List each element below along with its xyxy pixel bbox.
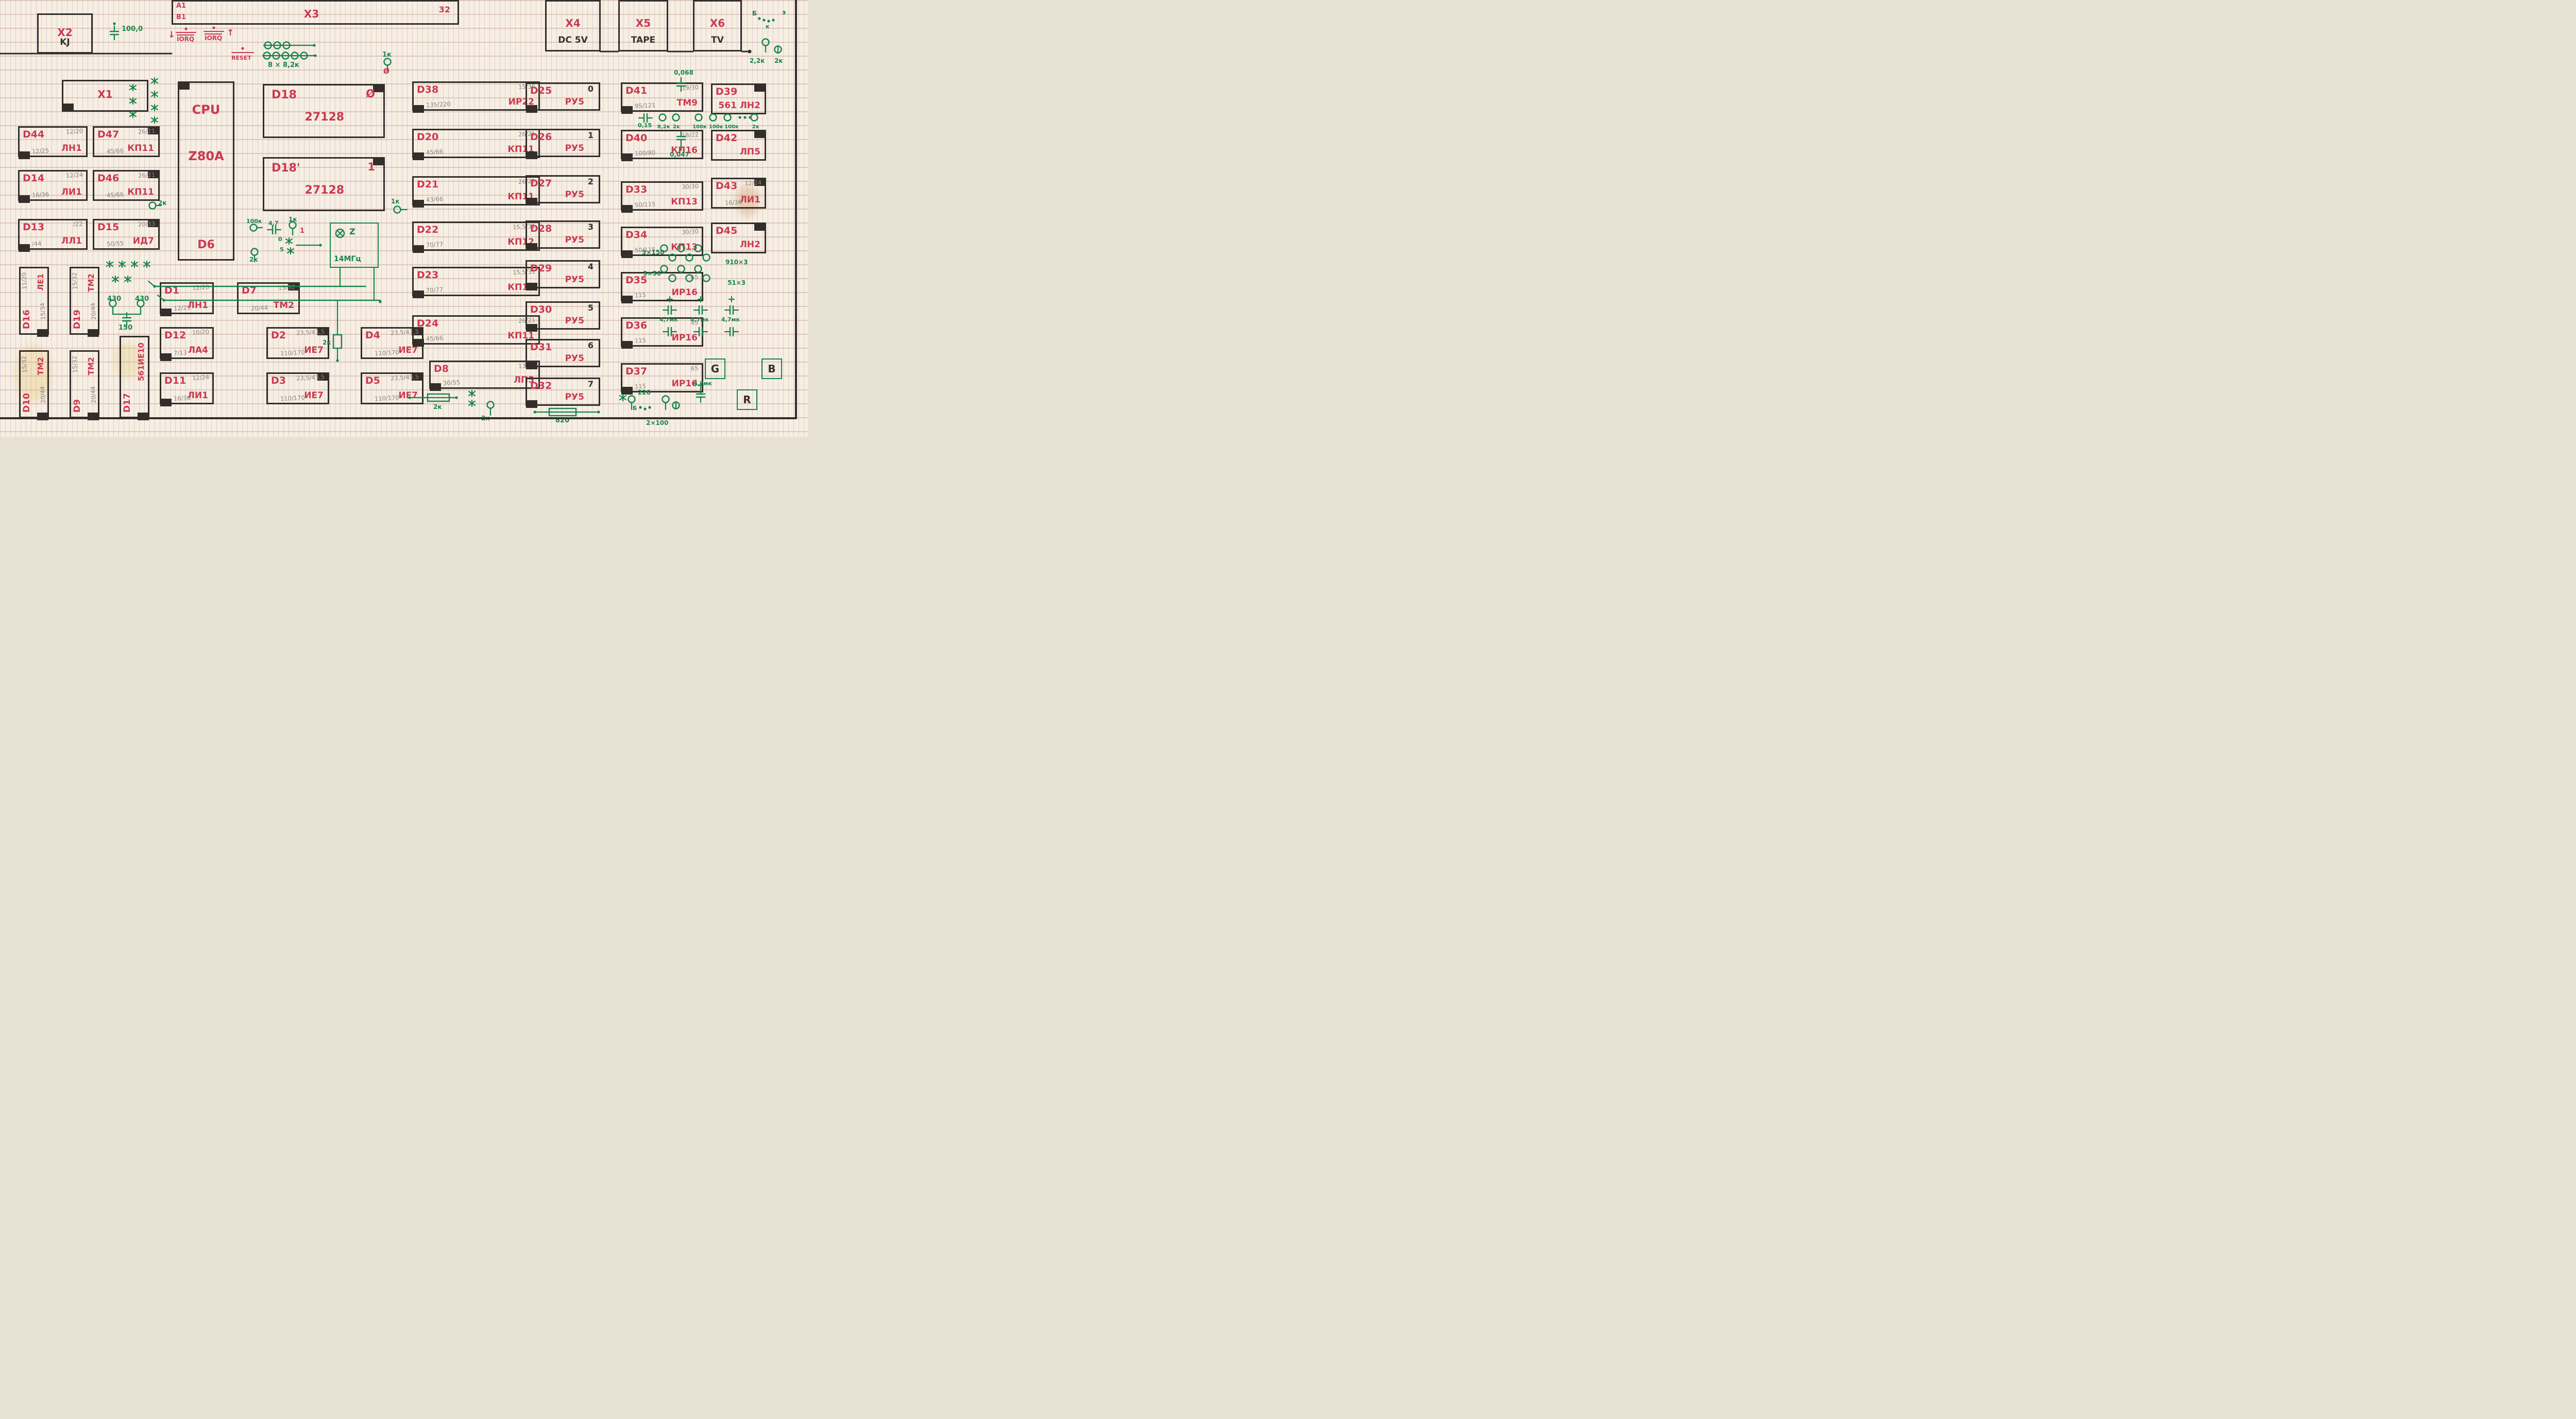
solder-dot-icon (767, 20, 770, 22)
annotation-grn: 5 (280, 247, 284, 252)
chip-pencil-coord: 10/20 (192, 329, 210, 336)
chip-type: ТМ2 (274, 301, 294, 310)
chip-pencil-coord: 43/66 (426, 196, 444, 203)
resistor-icon (663, 396, 669, 403)
chip-pencil-coord: 12/20 (66, 128, 83, 135)
solder-dot-icon (533, 411, 536, 413)
chip-d14: D1412/24ЛИ116/36 (18, 170, 88, 201)
chip-ref: D11 (164, 376, 186, 386)
annotation-grn: 2×100 (646, 420, 668, 426)
diode-icon (151, 92, 158, 96)
annotation-grn: 0,047 (670, 151, 689, 158)
chip-pencil-coord: 110/170 (375, 395, 399, 402)
chip-pencil-coord: 110/170 (280, 349, 305, 356)
annotation-grn: 430 (107, 296, 121, 302)
diode-icon (287, 249, 294, 253)
chip-ref: D39 (716, 87, 737, 97)
pin1-notch (178, 82, 190, 90)
solder-dot-icon (113, 22, 115, 25)
pin1-notch (621, 205, 633, 213)
solder-dot-icon (319, 244, 321, 246)
connector-ref: X6 (694, 18, 740, 28)
chip-type: ЛЕ1 (37, 273, 45, 290)
chip-type: 561ИЕ10 (138, 343, 145, 381)
connector-x3: A1B1X332 (172, 0, 459, 25)
chip-d32: D32РУ57 (526, 378, 600, 406)
chip-ref: D3 (271, 376, 286, 386)
solder-dot-icon (748, 50, 752, 54)
solder-dot-icon (597, 411, 600, 413)
diode-icon (620, 396, 626, 400)
chip-ref: D23 (417, 270, 438, 280)
annotation-grn: 8 × 8,2к (268, 62, 299, 69)
connector-name: KJ (39, 38, 91, 47)
diode-icon (469, 391, 475, 396)
diode-icon (144, 262, 150, 266)
rotated-label-area: D17561ИЕ10 (121, 338, 148, 416)
diode-icon (151, 118, 158, 122)
chip-ref: D5 (365, 376, 380, 386)
chip-pencil-coord: 19/30 (682, 84, 699, 91)
annotation-grn: 2к (752, 125, 759, 130)
chip-d12: D1210/20ЛА47/13 (160, 327, 214, 359)
diode-icon (107, 262, 113, 266)
chip-type: ИД7 (133, 237, 154, 246)
chip-pencil-coord: 26/21 (138, 128, 156, 135)
chip-d30: D30РУ55 (526, 301, 600, 330)
solder-dot-icon (336, 359, 338, 362)
resistor-body-icon (333, 335, 342, 348)
annotation-grn: 4,7мк (659, 317, 678, 322)
diode-icon (151, 79, 158, 83)
chip-ref: D29 (530, 264, 552, 273)
chip-pencil-coord: /22 (73, 221, 83, 228)
diode-icon (151, 106, 158, 110)
chip-ref: D32 (530, 381, 552, 391)
chip-d3: D323,5/43,5ИЕ7110/170 (266, 372, 329, 404)
annotation-grn: Б (752, 10, 757, 16)
annotation-grn: к (766, 24, 769, 29)
crystal-oscillator: Z14МГц (330, 223, 379, 268)
chip-type: ИЕ7 (398, 346, 418, 355)
chip-d23: D2315,5/31КП1270/77 (412, 267, 540, 296)
chip-ref: D25 (530, 86, 552, 96)
trace-line (148, 281, 155, 286)
connector-name: TAPE (620, 36, 667, 45)
chip-type: ТМ9 (677, 99, 698, 108)
pin1-notch (526, 198, 537, 206)
resistor-icon (673, 402, 680, 409)
chip-pencil-coord: 20/44 (90, 386, 97, 404)
chip-type: ЛА4 (188, 346, 208, 355)
resistor-icon (149, 202, 156, 209)
chip-ref: D31 (530, 343, 552, 352)
chip-ref: D44 (23, 130, 44, 140)
chip-type: 561 ЛН2 (718, 101, 760, 110)
diode-icon (107, 262, 113, 266)
solder-dot-icon (455, 396, 457, 399)
connector-x1: X1 (62, 80, 148, 112)
pin1-notch (754, 223, 766, 231)
annotation-grn: 2к (249, 257, 258, 263)
annotation-grn: Б (633, 405, 637, 411)
chip-ref: D47 (97, 130, 119, 140)
chip-type: ИР16 (672, 288, 698, 297)
chip-d19: D1915/32ТМ220/44 (70, 267, 99, 335)
chip-model: 27128 (305, 112, 345, 123)
solder-dot-icon (241, 47, 244, 49)
pin1-notch (413, 339, 424, 347)
ram-bit-index: 4 (588, 263, 594, 271)
chip-d17: D17561ИЕ10 (120, 336, 149, 418)
chip-ref: D8 (434, 364, 449, 374)
chip-d39: D39561 ЛН2 (711, 83, 766, 114)
resistor-body-icon (549, 408, 576, 416)
resistor-icon (678, 266, 685, 272)
ram-bit-index: 5 (588, 304, 594, 312)
solder-dot-icon (314, 54, 316, 57)
annotation-red: IORQ (177, 35, 194, 42)
chip-pencil-coord: 30/55 (443, 380, 461, 386)
annotation-grn: 51×3 (727, 280, 745, 286)
diode-icon (131, 262, 138, 266)
chip-d33: D3330/30КП1350/115 (621, 181, 703, 211)
chip-type: КП11 (127, 188, 154, 197)
solder-dot-icon (643, 407, 646, 410)
chip-pencil-coord: 11/20 (21, 272, 28, 290)
pin1-notch (413, 290, 424, 298)
resistor-icon (762, 39, 769, 46)
pin1-notch (621, 106, 633, 114)
annotation-grn: 2к (323, 339, 331, 346)
chip-ref: D20 (417, 132, 438, 142)
chip-d2: D223,5/43,5ИЕ7110/170 (266, 327, 329, 359)
solder-dot-icon (749, 116, 751, 118)
chip-d21: D2126/21КП1143/66 (412, 176, 540, 206)
resistor-icon (696, 114, 702, 121)
diode-icon (151, 92, 158, 96)
chip-ref: D18' (272, 163, 300, 174)
annotation-grn: 2к (774, 58, 783, 64)
chip-index: Ø (366, 89, 375, 99)
chip-d7: D715/32ТМ220/44 (237, 282, 300, 314)
rotated-label-area: D1915/32ТМ220/44 (71, 269, 98, 332)
chip-d1: D112/20ЛН112/25 (160, 282, 214, 314)
chip-type: ИЕ7 (398, 391, 418, 400)
chip-type: РУ5 (565, 317, 584, 326)
chip-pencil-coord: 110/170 (280, 395, 305, 402)
connector-pin-label: 32 (439, 6, 450, 14)
annotation-grn: 0 (278, 236, 282, 242)
chip-pencil-coord: 7/13 (174, 350, 187, 356)
chip-type: РУ5 (565, 98, 584, 107)
chip-ref: D34 (625, 230, 647, 240)
pin1-notch (413, 245, 424, 253)
chip-pencil-coord: 12/25 (174, 305, 191, 312)
pin1-notch (430, 383, 441, 391)
chip-d5: D523,5/43,5ИЕ7110/170 (361, 372, 423, 404)
annotation-grn: 4,7 (268, 220, 279, 226)
diode-icon (125, 277, 131, 281)
pin1-notch (19, 151, 30, 159)
diode-icon (119, 262, 125, 266)
chip-ref: D45 (716, 226, 737, 236)
chip-ref: D17 (123, 393, 132, 413)
chip-ref: D16 (23, 310, 31, 329)
chip-d10: D1015/32ТМ220/44 (19, 350, 49, 418)
chip-d15: D1520/33ИД750/55 (93, 219, 160, 250)
pin1-notch (413, 152, 424, 160)
chip-d9: D915/32ТМ220/44 (70, 350, 99, 418)
video-channel-letter: B (762, 364, 781, 374)
diode-icon (469, 401, 475, 405)
annotation-grn: 0,068 (674, 70, 693, 76)
chip-d41: D4119/30ТМ995/121 (621, 82, 703, 112)
diode-icon (151, 118, 158, 122)
chip-ref: D15 (97, 223, 119, 232)
annotation-grn: 150 (118, 324, 132, 331)
chip-d13: D13/22ЛЛ1/44 (18, 219, 88, 250)
annotation-grn: 3×56 (643, 270, 661, 277)
chip-d42: D42ЛП5 (711, 130, 766, 161)
chip-pencil-coord: 26/21 (138, 172, 156, 179)
connector-ref: X4 (547, 18, 599, 28)
diode-icon (151, 79, 158, 83)
ram-bit-index: 2 (588, 178, 594, 186)
resistor-icon (724, 114, 731, 121)
diode-icon (125, 277, 131, 281)
chip-pencil-coord: 23,5/43,5 (391, 374, 419, 382)
resistor-icon (661, 266, 668, 272)
solder-dot-icon (184, 27, 187, 30)
chip-d8: D813/23ЛП530/55 (429, 361, 540, 389)
solder-dot-icon (379, 300, 381, 303)
chip-ref: D28 (530, 224, 552, 234)
diode-icon (620, 396, 626, 400)
pin1-notch (526, 105, 537, 113)
annotation-red: ↓ (168, 31, 175, 40)
pin1-notch (754, 84, 766, 92)
resistor-icon (659, 114, 666, 121)
resistor-icon (394, 207, 401, 213)
chip-d16: D1611/20ЛЕ115/34 (19, 267, 49, 335)
chip-type: ЛИ1 (61, 188, 82, 197)
rotated-label-area: D1015/32ТМ220/44 (21, 353, 47, 416)
chip-pencil-coord: 45/66 (426, 335, 444, 342)
chip-d25: D25РУ50 (526, 82, 600, 111)
diode-icon (112, 277, 118, 281)
resistor-icon (629, 396, 635, 403)
chip-type: ИЕ7 (304, 346, 324, 355)
chip-pencil-coord: 95/121 (635, 102, 656, 109)
chip-pencil-coord: 12/24 (744, 180, 762, 186)
chip-ref: D12 (164, 331, 186, 340)
chip-pencil-coord: 70/77 (426, 287, 444, 294)
chip-d37: D3765ИР16115 (621, 363, 703, 392)
connector-name: TV (694, 36, 740, 45)
chip-type: КП13 (671, 198, 698, 207)
chip-d6: CPUZ80AD6 (178, 81, 234, 261)
chip-model: 27128 (305, 185, 345, 196)
resistor-icon (273, 53, 280, 59)
pin1-notch (19, 244, 30, 252)
connector-pin-label: A1 (176, 3, 186, 9)
chip-ref: D2 (271, 331, 286, 340)
chip-d46: D4626/21КП1145/66 (93, 170, 160, 201)
chip-d22: D2215,5/31КП1270/77 (412, 221, 540, 251)
chip-pencil-coord: 65 (691, 275, 699, 281)
chip-pencil-coord: 23,5/43,5 (296, 329, 325, 336)
chip-type: ТМ2 (88, 273, 95, 292)
solder-dot-icon (738, 116, 741, 118)
annotation-grn: 2к (673, 125, 680, 130)
pin1-notch (62, 104, 74, 111)
resistor-icon (251, 249, 258, 255)
annotation-grn: 100,0 (122, 26, 143, 32)
resistor-icon (775, 46, 782, 53)
chip-pencil-coord: 16/36 (32, 192, 49, 198)
diode-icon (112, 277, 118, 281)
chip-ref: D38 (417, 85, 438, 95)
diode-icon (469, 391, 475, 396)
annotation-red: Ø (383, 68, 389, 75)
chip-type: ЛН1 (61, 144, 82, 153)
chip-ref: D9 (73, 399, 82, 413)
chip-ref: D21 (417, 180, 438, 190)
connector-x4: X4DC 5V (545, 0, 601, 52)
ram-bit-index: 0 (588, 85, 594, 93)
chip-ref: D22 (417, 225, 438, 235)
pin1-notch (526, 243, 537, 251)
chip-d43: D4312/24ЛИ116/36 (711, 178, 766, 209)
chip-ref: D1 (164, 286, 179, 296)
diode-icon (286, 239, 292, 243)
annotation-grn: э (782, 9, 786, 15)
diode-icon (144, 262, 150, 266)
chip-d40: D4018/22КП16100/80 (621, 130, 703, 159)
chip-pencil-coord: 20/44 (251, 305, 268, 312)
pin1-notch (621, 341, 633, 349)
chip-pencil-coord: 50/115 (635, 201, 656, 208)
rotated-label-area: D1611/20ЛЕ115/34 (21, 269, 47, 332)
resistor-icon (710, 114, 717, 121)
chip-ref: D24 (417, 319, 438, 329)
annotation-red: RESET (231, 55, 251, 61)
chip-type: РУ5 (565, 144, 584, 153)
pin1-notch (526, 324, 537, 332)
pin1-notch (621, 153, 633, 161)
resistor-icon (250, 225, 257, 231)
resistor-icon (282, 53, 289, 59)
chip-type: ЛИ1 (740, 196, 760, 204)
resistor-icon (673, 114, 680, 121)
pin1-notch (160, 353, 172, 361)
diode-icon (130, 112, 136, 116)
chip-index: 1 (367, 162, 375, 173)
resistor-icon (265, 42, 272, 49)
pin1-notch (621, 296, 633, 303)
resistor-icon (264, 53, 270, 59)
chip-pencil-coord: 12/25 (32, 148, 49, 155)
annotation-grn: 100к (724, 125, 739, 130)
annotation-grn: 4,7мк (690, 317, 709, 322)
chip-pencil-coord: 100/80 (635, 149, 656, 157)
chip-d24: D2426/21КП1145/66 (412, 315, 540, 345)
pin1-notch (413, 105, 424, 113)
pin1-notch (526, 151, 537, 159)
solder-dot-icon (772, 19, 774, 21)
chip-pencil-coord: 30/30 (682, 183, 699, 190)
chip-d11: D1112/24ЛИ116/36 (160, 372, 214, 404)
resistor-icon (695, 266, 702, 272)
chip-pencil-coord: 23,5/43,5 (296, 374, 325, 382)
connector-ref: X2 (39, 27, 91, 38)
chip-pencil-coord: 20/44 (90, 303, 97, 320)
chip-type: ЛП5 (740, 148, 760, 157)
chip-ref: D19 (73, 310, 82, 329)
resistor-icon (292, 53, 298, 59)
chip-pencil-coord: 15/32 (72, 356, 78, 373)
chip-pencil-coord: 18/22 (682, 132, 699, 139)
chip-type: ЛН2 (740, 241, 760, 249)
chip-pencil-coord: 16/36 (725, 199, 742, 206)
chip-ref: D13 (23, 223, 44, 232)
video-channel-letter: G (706, 364, 724, 374)
chip-d44: D4412/20ЛН112/25 (18, 126, 88, 157)
annotation-grn: 1к (391, 198, 400, 204)
chip-type: РУ5 (565, 354, 584, 363)
cpu-label: CPU (179, 104, 233, 116)
ram-bit-index: 3 (588, 223, 594, 231)
chip-type: ТМ2 (88, 357, 95, 375)
annotation-grn: 100к (709, 125, 723, 130)
chip-pencil-coord: 45/66 (107, 192, 124, 198)
diode-icon (119, 262, 125, 266)
pin1-notch (160, 309, 172, 316)
chip-pencil-coord: 115 (635, 292, 647, 299)
crystal-symbol: Z (349, 228, 355, 236)
chip-type: ИР16 (672, 334, 698, 343)
chip-pencil-coord: 20/33 (138, 221, 156, 228)
solder-dot-icon (743, 116, 746, 118)
chip-ref: D10 (23, 393, 31, 413)
resistor-icon (301, 53, 308, 59)
annotation-grn: 820 (555, 417, 569, 424)
chip-pencil-coord: 15/32 (278, 284, 296, 291)
pin1-notch (526, 362, 537, 369)
chip-type: КП11 (127, 144, 154, 153)
annotation-grn: 2к (481, 415, 490, 421)
annotation-grn: 910×3 (725, 259, 748, 265)
cpu-ref: D6 (179, 240, 233, 251)
chip-d45: D45ЛН2 (711, 223, 766, 253)
resistor-icon (274, 42, 281, 49)
pin1-notch (621, 250, 633, 258)
chip-ref: D40 (625, 133, 647, 143)
chip-ref: D37 (625, 367, 647, 377)
resistor-icon (703, 275, 710, 282)
chip-d31: D31РУ56 (526, 339, 600, 367)
chip-ref: D18 (272, 90, 297, 101)
resistor-icon (384, 59, 391, 65)
solder-dot-icon (212, 26, 215, 29)
chip-ref: D26 (530, 132, 552, 142)
connector-ref: X1 (63, 89, 147, 99)
video-output-pad-g: G (705, 358, 725, 379)
chip-pencil-coord: 115 (635, 337, 647, 344)
pin1-notch (526, 283, 537, 290)
chip-pencil-coord: 50/55 (107, 241, 124, 247)
